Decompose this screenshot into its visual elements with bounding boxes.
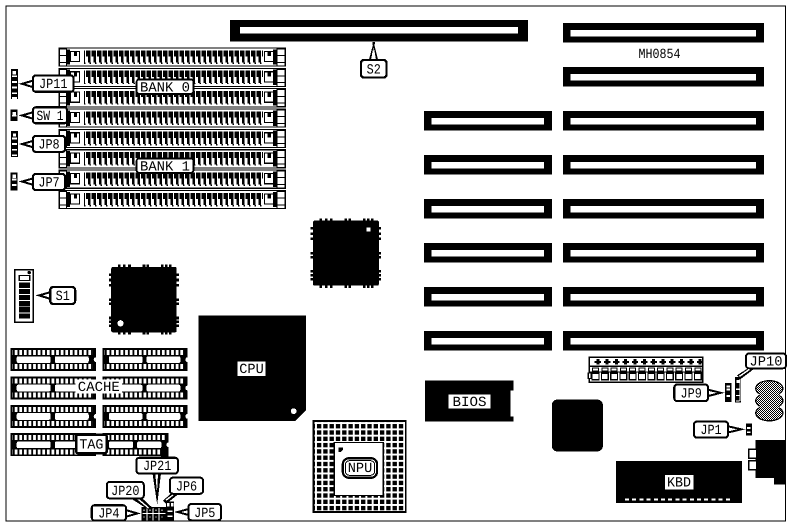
svg-text:JP10: JP10 — [750, 355, 783, 371]
svg-text:JP8: JP8 — [38, 138, 59, 154]
svg-text:JP4: JP4 — [98, 506, 119, 522]
svg-text:JP1: JP1 — [700, 423, 721, 439]
svg-text:CACHE: CACHE — [78, 380, 120, 396]
svg-text:S2: S2 — [367, 62, 381, 78]
svg-text:JP21: JP21 — [143, 459, 171, 475]
svg-text:JP20: JP20 — [111, 484, 139, 500]
svg-text:SW 1: SW 1 — [37, 109, 64, 125]
svg-text:JP7: JP7 — [38, 176, 59, 192]
svg-text:S1: S1 — [56, 289, 70, 305]
svg-text:JP6: JP6 — [176, 479, 197, 495]
svg-text:MH0854: MH0854 — [639, 47, 681, 63]
svg-text:JP11: JP11 — [39, 77, 67, 93]
svg-text:BANK 1: BANK 1 — [140, 159, 190, 175]
svg-text:KBD: KBD — [667, 476, 691, 492]
svg-text:BANK 0: BANK 0 — [140, 80, 190, 96]
svg-text:NPU: NPU — [348, 461, 373, 477]
svg-text:BIOS: BIOS — [453, 395, 487, 411]
svg-text:JP9: JP9 — [681, 386, 702, 402]
svg-text:JP5: JP5 — [194, 506, 215, 522]
svg-text:CPU: CPU — [239, 362, 264, 378]
svg-text:TAG: TAG — [79, 438, 103, 454]
